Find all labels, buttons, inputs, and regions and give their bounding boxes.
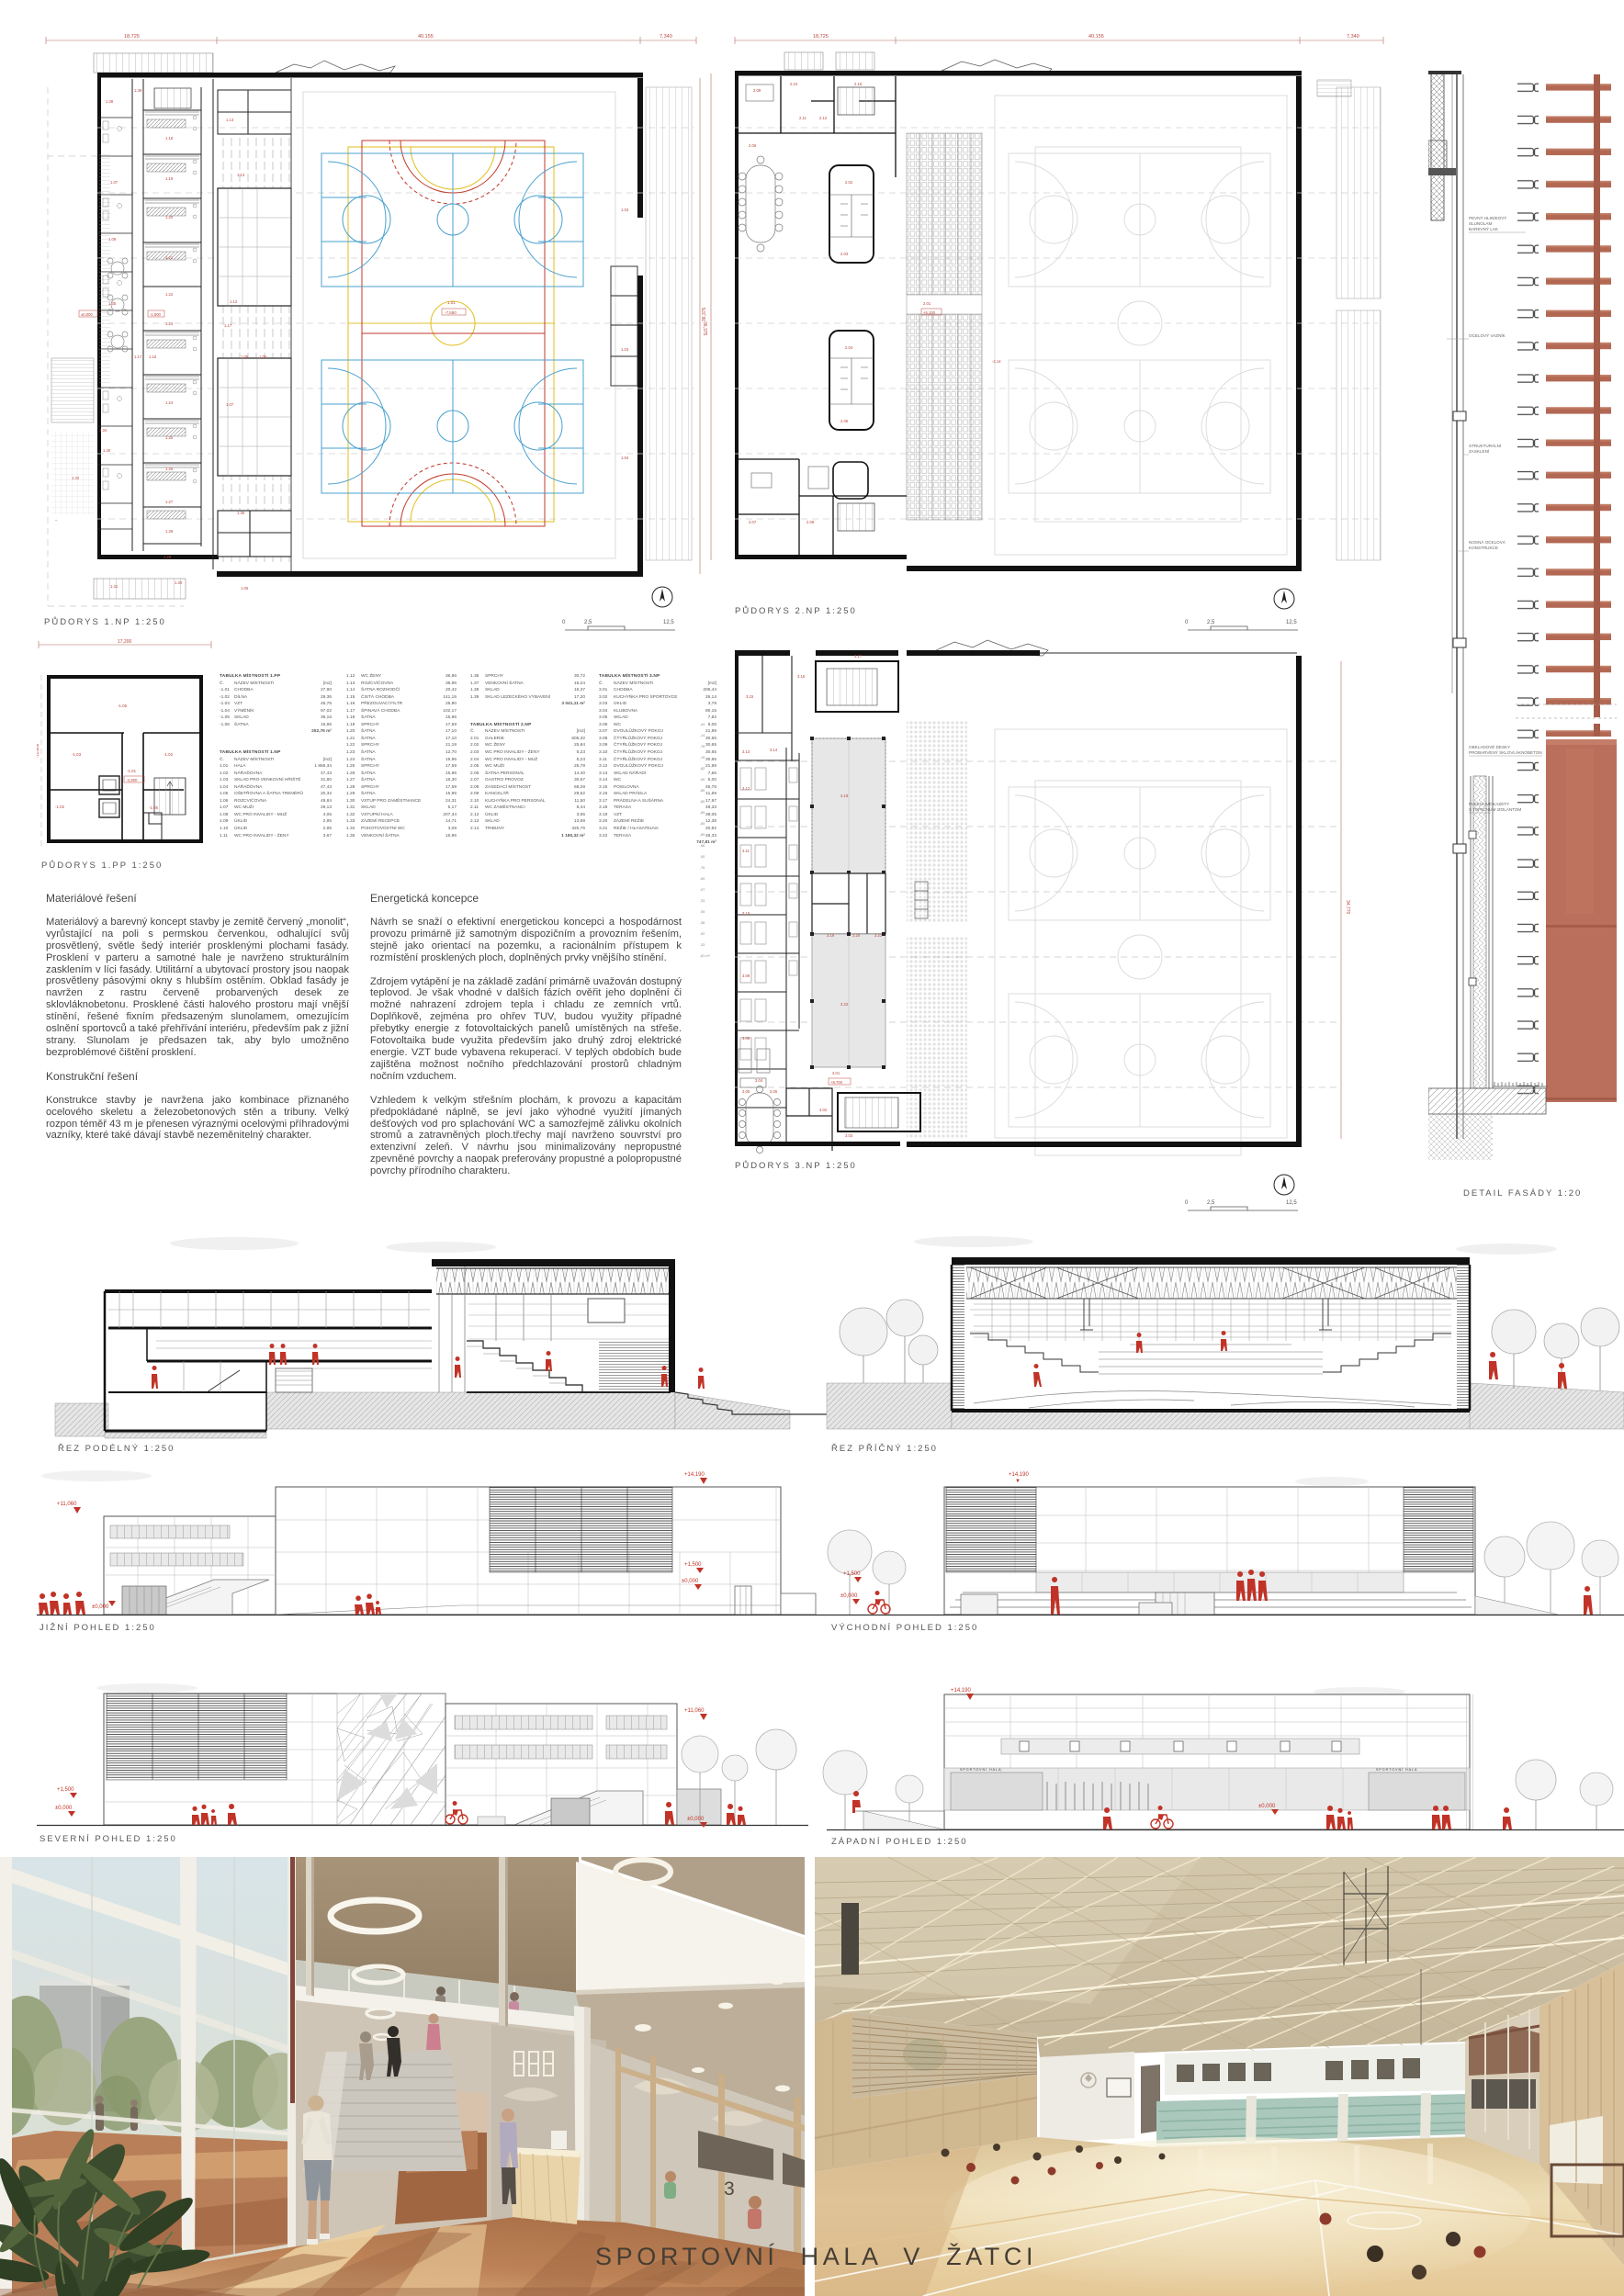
svg-text:±0,000: ±0,000 [81,312,93,317]
svg-text:BAREVNÝ LAK: BAREVNÝ LAK [1469,226,1499,231]
svg-text:,44: ,44 [700,723,705,726]
svg-text:-4,300: -4,300 [126,778,138,782]
svg-text:+1,500: +1,500 [57,1787,74,1793]
svg-text:1.38: 1.38 [106,99,114,104]
svg-text:+8,700: +8,700 [830,1080,843,1085]
svg-text:SEVERNÍ POHLED 1:250: SEVERNÍ POHLED 1:250 [39,1834,177,1844]
svg-text:+14,190: +14,190 [1009,1472,1030,1478]
svg-text:-1,500: -1,500 [150,312,162,317]
svg-text:7,340: 7,340 [660,34,672,39]
svg-text:1.30: 1.30 [103,448,111,453]
svg-text:1.03: 1.03 [621,208,629,212]
svg-text:STRUKTURÁLNÍ: STRUKTURÁLNÍ [1469,443,1502,448]
svg-text:1.34: 1.34 [99,428,107,433]
svg-text:1.32: 1.32 [72,476,80,480]
svg-text:,15: ,15 [700,756,705,760]
svg-text:0: 0 [1185,620,1189,625]
svg-text:34,770: 34,770 [1345,900,1350,915]
svg-text:-1.06: -1.06 [118,703,128,708]
svg-text:1.24: 1.24 [165,400,174,405]
svg-text:+1,500: +1,500 [843,1571,861,1577]
svg-text:1.05: 1.05 [259,355,267,359]
svg-text:1.22: 1.22 [165,292,174,297]
svg-text:3.14: 3.14 [770,748,778,752]
svg-text:,78: ,78 [700,745,705,748]
svg-text:,65: ,65 [700,811,705,815]
svg-text:40,155: 40,155 [418,34,434,39]
svg-text:1.39: 1.39 [134,88,142,93]
svg-text:2,5: 2,5 [1207,620,1215,625]
svg-text:ŘEZ PODÉLNÝ 1:250: ŘEZ PODÉLNÝ 1:250 [58,1444,175,1454]
svg-text:‒: ‒ [55,518,58,523]
svg-text:3.13: 3.13 [742,749,750,754]
svg-text:2.10: 2.10 [790,82,798,86]
svg-text:±0,000: ±0,000 [687,1817,705,1822]
svg-text:1.17: 1.17 [134,355,142,359]
svg-text:,82: ,82 [700,767,705,771]
svg-text:1.19: 1.19 [165,176,174,181]
svg-text:+11,060: +11,060 [684,1708,705,1714]
svg-text:3.21: 3.21 [874,933,883,938]
svg-text:12,5: 12,5 [1286,1200,1297,1206]
svg-text:-10,600: -10,600 [37,743,39,758]
svg-text:2.05: 2.05 [840,419,849,423]
svg-text:1.05: 1.05 [241,586,249,591]
svg-text:1.36: 1.36 [237,511,245,515]
svg-text:1.14: 1.14 [226,118,234,122]
svg-text:1.21: 1.21 [165,255,174,260]
svg-text:,05: ,05 [700,910,705,914]
svg-text:,89: ,89 [700,833,705,837]
svg-text:+1,500: +1,500 [684,1562,702,1568]
svg-text:1.12: 1.12 [230,299,238,304]
svg-text:+5,100: +5,100 [923,310,936,315]
svg-text:,92: ,92 [700,932,705,936]
svg-text:2.09: 2.09 [753,88,761,93]
svg-text:2.07: 2.07 [749,520,757,524]
svg-text:1.30: 1.30 [175,580,183,585]
svg-text:40,155: 40,155 [1088,34,1104,39]
svg-text:36,375: 36,375 [702,307,707,321]
svg-text:1.29: 1.29 [164,555,172,559]
svg-text:2.04: 2.04 [845,345,853,350]
svg-text:±0,000: ±0,000 [1258,1804,1276,1809]
svg-text:OBKLADOVÉ DESKY: OBKLADOVÉ DESKY [1469,744,1510,749]
svg-text:,65: ,65 [700,800,705,804]
svg-text:-7,550: -7,550 [445,310,457,315]
svg-text:3.11: 3.11 [742,849,750,853]
svg-text:1.07: 1.07 [226,402,234,407]
svg-text:,66: ,66 [700,844,705,848]
svg-text:2.01: 2.01 [923,301,931,306]
svg-text:,89: ,89 [700,789,705,793]
svg-text:17,200: 17,200 [118,639,132,645]
svg-text:1.18: 1.18 [165,136,174,141]
svg-text:18,725: 18,725 [813,34,829,39]
svg-text:NOSNÁ OCELOVÁ: NOSNÁ OCELOVÁ [1469,539,1506,545]
svg-text:3.17: 3.17 [854,654,863,658]
svg-text:3: 3 [724,2178,735,2200]
svg-text:+14,190: +14,190 [684,1472,705,1478]
svg-text:,69: ,69 [700,877,705,881]
svg-text:2,5: 2,5 [584,620,592,625]
svg-text:-1.05: -1.05 [149,805,159,810]
svg-text:3.03: 3.03 [845,1133,853,1138]
svg-text:+11,060: +11,060 [57,1502,77,1507]
svg-text:1.26: 1.26 [165,467,174,471]
svg-text:3.12: 3.12 [742,786,750,791]
svg-text:0: 0 [1185,1200,1189,1206]
svg-text:2.12: 2.12 [819,116,828,120]
svg-text:1.04: 1.04 [621,456,629,460]
svg-text:KONSTRUKCE: KONSTRUKCE [1469,546,1498,550]
svg-text:SPORTOVNÍ HALA: SPORTOVNÍ HALA [960,1768,1001,1772]
svg-text:1.35: 1.35 [108,301,117,306]
svg-text:PEVNÝ HLINÍKOVÝ: PEVNÝ HLINÍKOVÝ [1469,215,1506,220]
svg-text:-2,14: -2,14 [992,359,1001,364]
svg-text:1.08: 1.08 [241,355,249,359]
svg-text:+14,190: +14,190 [951,1688,972,1694]
svg-text:,65: ,65 [700,822,705,826]
svg-text:1.13: 1.13 [237,173,245,177]
svg-text:DETAIL FASÁDY 1:20: DETAIL FASÁDY 1:20 [1463,1188,1582,1199]
svg-text:-1.03: -1.03 [72,752,82,757]
svg-text:1.31: 1.31 [110,584,118,589]
svg-text:1.28: 1.28 [165,529,174,534]
svg-text:VÝCHODNÍ POHLED 1:250: VÝCHODNÍ POHLED 1:250 [831,1623,978,1633]
svg-text:3.22: 3.22 [840,1002,849,1007]
svg-text:PŮDORYS 1.PP 1:250: PŮDORYS 1.PP 1:250 [41,860,163,871]
svg-text:3.20: 3.20 [852,933,861,938]
svg-text:2.11: 2.11 [799,116,807,120]
svg-text:,00: ,00 [700,855,705,859]
svg-text:3.10: 3.10 [742,911,750,916]
svg-text:±0,000: ±0,000 [840,1593,858,1599]
svg-text:1.20: 1.20 [165,215,174,219]
svg-text:2.03: 2.03 [840,252,849,256]
svg-text:,97: ,97 [700,888,705,892]
svg-text:3.09: 3.09 [742,974,750,978]
svg-text:3.06: 3.06 [770,1089,778,1094]
svg-text:ŘEZ PŘÍČNÝ 1:250: ŘEZ PŘÍČNÝ 1:250 [831,1444,938,1454]
svg-text:1.07: 1.07 [110,180,118,185]
svg-text:,33: ,33 [700,943,705,947]
svg-text:3.16: 3.16 [797,674,806,679]
svg-text:1.17: 1.17 [224,323,232,328]
svg-text:18,725: 18,725 [124,34,140,39]
svg-text:,38: ,38 [700,921,705,925]
svg-text:PŮDORYS 1.NP 1:250: PŮDORYS 1.NP 1:250 [44,616,166,627]
svg-text:±0,000: ±0,000 [92,1604,109,1610]
svg-text:-1.02: -1.02 [164,752,174,757]
svg-text:2.06: 2.06 [749,143,757,148]
svg-text:-1.02: -1.02 [55,805,65,809]
svg-text:12,5: 12,5 [1286,620,1297,625]
svg-text:1.03: 1.03 [621,347,629,352]
svg-text:SLUNOLAM: SLUNOLAM [1469,221,1492,226]
svg-text:2.02: 2.02 [845,180,853,185]
svg-text:,81 m²: ,81 m² [700,954,710,958]
svg-text:3.08: 3.08 [742,1036,750,1041]
svg-text:OCELOVÝ VAZNÍK: OCELOVÝ VAZNÍK [1469,332,1506,338]
svg-text:3.05: 3.05 [742,1089,750,1094]
svg-text:1.25: 1.25 [165,435,174,440]
svg-text:1.01: 1.01 [447,300,456,305]
svg-text:3.15: 3.15 [746,694,754,699]
svg-text:3.19: 3.19 [827,933,835,938]
svg-text:▼: ▼ [1015,1479,1021,1484]
svg-text:2.15: 2.15 [854,82,863,86]
svg-text:3.18: 3.18 [840,793,849,798]
svg-text:-1.01: -1.01 [127,769,137,773]
svg-text:ZÁPADNÍ POHLED 1:250: ZÁPADNÍ POHLED 1:250 [831,1837,968,1847]
svg-text:1.27: 1.27 [165,500,174,504]
svg-text:2,5: 2,5 [1207,1200,1215,1206]
svg-text:ZASKLENÍ: ZASKLENÍ [1469,448,1490,454]
svg-text:7,340: 7,340 [1347,34,1359,39]
svg-text:,33: ,33 [700,899,705,903]
svg-text:SPORTOVNÍ HALA: SPORTOVNÍ HALA [1376,1768,1417,1772]
svg-text:1.23: 1.23 [165,321,174,326]
svg-text:,76: ,76 [700,866,705,870]
svg-text:,14: ,14 [700,734,705,737]
svg-text:3.04: 3.04 [755,1078,763,1083]
svg-text:1.09: 1.09 [108,237,117,242]
svg-text:0: 0 [562,620,566,625]
svg-text:3.01: 3.01 [832,1071,840,1075]
svg-text:12,5: 12,5 [663,620,674,625]
svg-text:JIŽNÍ POHLED 1:250: JIŽNÍ POHLED 1:250 [39,1623,156,1633]
svg-text:±0,000: ±0,000 [55,1806,73,1811]
svg-text:±0,000: ±0,000 [682,1579,699,1584]
svg-text:3.02: 3.02 [819,1108,828,1112]
svg-text:,06: ,06 [700,778,705,782]
svg-text:2.08: 2.08 [806,520,815,524]
svg-text:PŮDORYS 3.NP 1:250: PŮDORYS 3.NP 1:250 [735,1160,857,1171]
svg-text:1.16: 1.16 [149,355,157,359]
svg-text:PŮDORYS 2.NP 1:250: PŮDORYS 2.NP 1:250 [735,605,857,616]
